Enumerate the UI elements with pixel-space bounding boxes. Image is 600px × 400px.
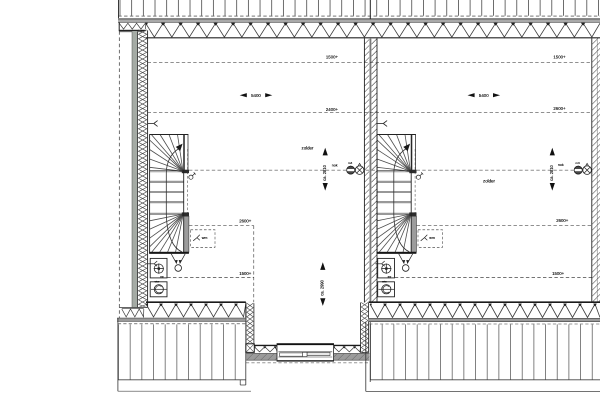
svg-text:ca. 2810: ca. 2810 bbox=[549, 164, 554, 180]
svg-text:1500+: 1500+ bbox=[553, 54, 566, 59]
svg-text:2400+: 2400+ bbox=[326, 107, 339, 112]
svg-text:ca. 2810: ca. 2810 bbox=[322, 164, 327, 180]
svg-text:2600+: 2600+ bbox=[239, 218, 252, 223]
svg-text:nok: nok bbox=[558, 163, 564, 167]
svg-text:5400: 5400 bbox=[251, 93, 261, 98]
svg-text:m3: m3 bbox=[348, 161, 353, 165]
svg-text:1500+: 1500+ bbox=[239, 271, 252, 276]
svg-text:m3: m3 bbox=[575, 161, 580, 165]
svg-text:nok: nok bbox=[332, 163, 338, 167]
svg-text:2600+: 2600+ bbox=[556, 218, 569, 223]
svg-text:1500+: 1500+ bbox=[326, 55, 339, 60]
svg-text:zolder: zolder bbox=[483, 178, 495, 183]
svg-text:1500+: 1500+ bbox=[552, 271, 565, 276]
svg-text:zolder: zolder bbox=[302, 145, 314, 150]
svg-text:ca. 2990: ca. 2990 bbox=[320, 279, 325, 295]
svg-text:5400: 5400 bbox=[479, 93, 489, 98]
svg-text:2600+: 2600+ bbox=[553, 106, 566, 111]
